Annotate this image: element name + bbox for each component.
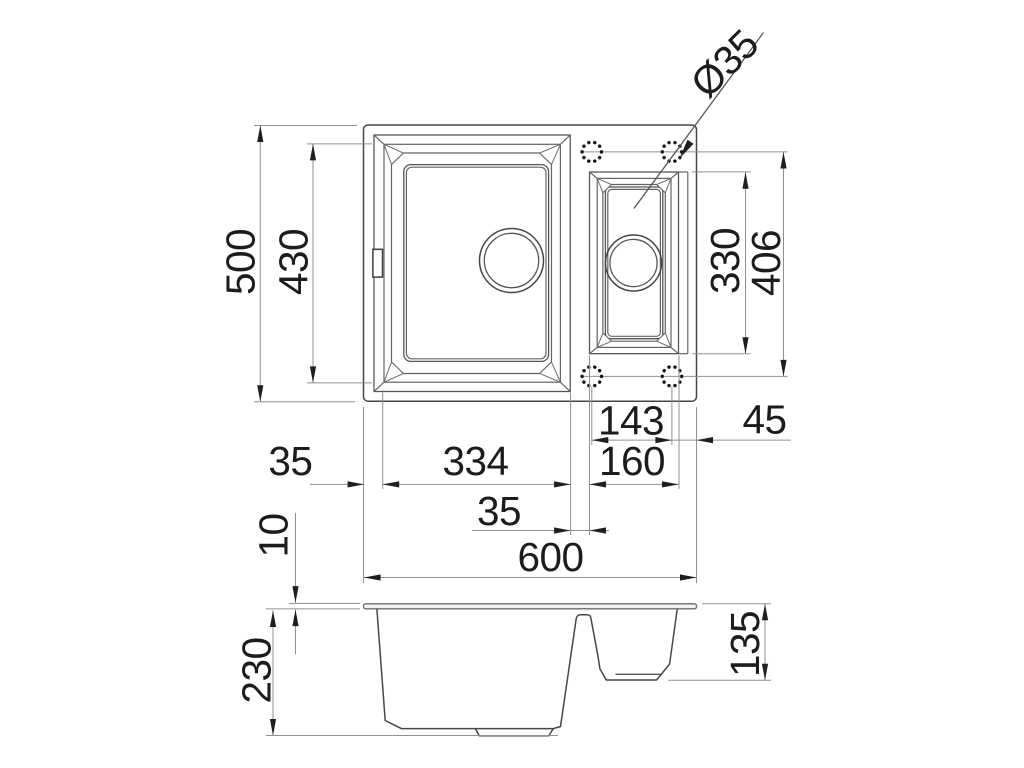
svg-text:45: 45	[742, 396, 786, 442]
svg-text:500: 500	[218, 229, 264, 295]
svg-text:35: 35	[268, 438, 312, 484]
svg-text:600: 600	[517, 534, 583, 580]
svg-text:10: 10	[250, 513, 296, 557]
svg-text:334: 334	[442, 438, 508, 484]
svg-text:406: 406	[743, 230, 789, 296]
svg-text:330: 330	[702, 228, 748, 294]
svg-text:230: 230	[234, 637, 280, 703]
svg-text:430: 430	[270, 229, 316, 295]
svg-text:143: 143	[598, 397, 664, 443]
svg-text:135: 135	[722, 611, 768, 677]
svg-text:35: 35	[477, 488, 521, 534]
svg-text:160: 160	[599, 438, 665, 484]
